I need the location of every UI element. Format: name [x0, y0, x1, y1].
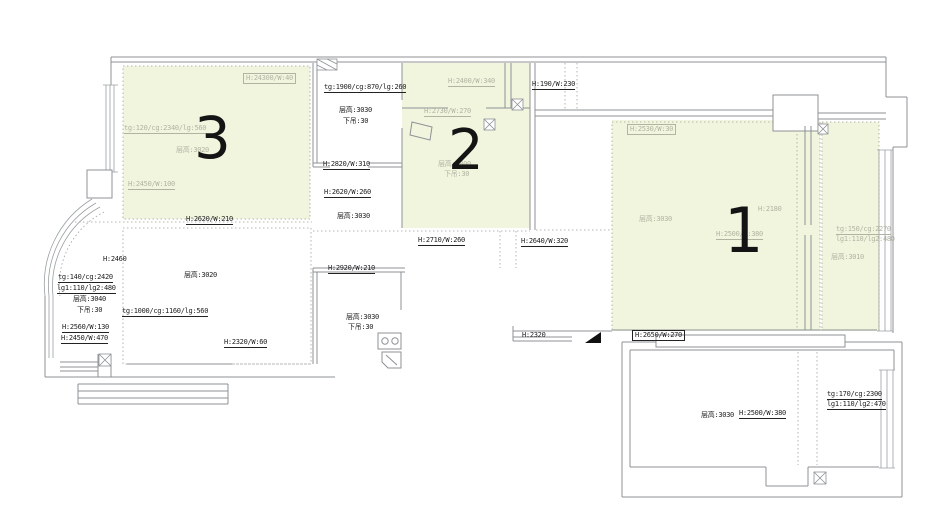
dimension-label: H:2620/W:260	[324, 188, 371, 198]
dimension-label: H:2730/W:270	[424, 107, 471, 117]
dimension-label: lg1:110/lg2:480	[57, 284, 116, 294]
dimension-label: H:2320/W:60	[224, 338, 267, 348]
dimension-label: H:2560/W:130	[62, 323, 109, 333]
ceiling-height-label: 下吊:30	[343, 117, 368, 125]
dimension-label: H:2650/W:270	[632, 330, 685, 341]
dimension-label: H:2710/W:260	[418, 236, 465, 246]
dimension-label: H:2500/W:380	[739, 409, 786, 419]
dimension-label: lg1:110/lg2:480	[836, 235, 895, 243]
dimension-label: H:2820/W:310	[323, 160, 370, 170]
ceiling-height-label: 层高:3030	[339, 106, 372, 114]
ceiling-height-label: 层高:3010	[831, 253, 864, 261]
dimension-label: H:2320	[522, 331, 546, 339]
ceiling-height-label: 层高:3030	[701, 411, 734, 419]
dimension-label: H:2640/W:320	[521, 237, 568, 247]
ceiling-height-label: 层高:3030	[346, 313, 379, 321]
ceiling-height-label: 下吊:30	[77, 306, 102, 314]
dimension-label: H:2530/W:30	[627, 124, 676, 135]
ceiling-height-label: 层高:3020	[184, 271, 217, 279]
dimension-label: tg:150/cg:2270	[836, 225, 891, 235]
floor-plan: H:24300/W:40tg:120/cg:2340/lg:560层高:3020…	[0, 0, 952, 527]
room-number-1: 1	[724, 194, 763, 267]
dimension-label: tg:140/cg:2420	[58, 273, 113, 283]
dimension-label: H:2620/W:210	[186, 215, 233, 225]
dimension-label: H:2450/W:470	[61, 334, 108, 344]
room-number-3: 3	[194, 104, 231, 172]
ceiling-height-label: 层高:3040	[73, 295, 106, 303]
ceiling-height-label: 下吊:30	[348, 323, 373, 331]
annotation-layer: H:24300/W:40tg:120/cg:2340/lg:560层高:3020…	[0, 0, 952, 527]
dimension-label: H:24300/W:40	[243, 73, 296, 84]
room-number-2: 2	[448, 118, 484, 183]
dimension-label: H:2450/W:100	[128, 180, 175, 190]
dimension-label: H:190/W:230	[532, 80, 575, 90]
dimension-label: H:2920/W:210	[328, 264, 375, 274]
dimension-label: tg:1000/cg:1160/lg:560	[122, 307, 208, 317]
dimension-label: lg1:110/lg2:470	[827, 400, 886, 410]
ceiling-height-label: 层高:3030	[337, 212, 370, 220]
dimension-label: tg:1900/cg:870/lg:260	[324, 83, 406, 93]
dimension-label: tg:170/cg:2300	[827, 390, 882, 400]
dimension-label: H:2460	[103, 255, 127, 263]
dimension-label: H:2400/W:340	[448, 77, 495, 87]
ceiling-height-label: 层高:3030	[639, 215, 672, 223]
